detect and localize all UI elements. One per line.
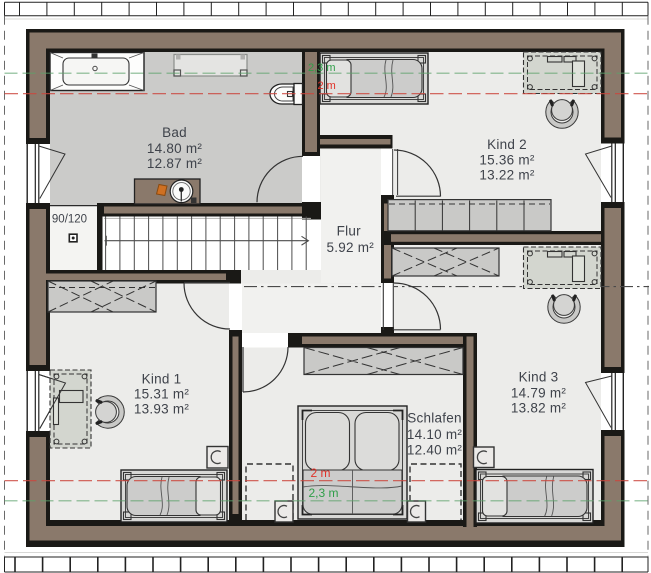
svg-text:14.10 m²: 14.10 m² [407,427,463,442]
svg-text:2,3 m: 2,3 m [308,62,336,74]
svg-text:2 m: 2 m [318,80,336,92]
svg-text:5.92 m²: 5.92 m² [327,240,375,255]
svg-text:Kind 3: Kind 3 [519,369,559,384]
svg-text:13.93 m²: 13.93 m² [134,402,190,417]
svg-text:Kind 1: Kind 1 [142,372,182,387]
svg-text:Schlafen: Schlafen [407,411,462,426]
svg-text:15.31 m²: 15.31 m² [134,386,190,401]
svg-text:12.87 m²: 12.87 m² [147,156,203,171]
svg-text:Bad: Bad [162,125,187,140]
svg-text:13.82 m²: 13.82 m² [511,401,567,416]
svg-text:90/120: 90/120 [52,214,87,226]
svg-text:Flur: Flur [337,224,362,239]
svg-text:15.36 m²: 15.36 m² [479,152,535,167]
svg-text:14.79 m²: 14.79 m² [511,385,567,400]
svg-text:Kind 2: Kind 2 [487,137,527,152]
svg-text:2 m: 2 m [311,466,331,480]
svg-text:2,3 m: 2,3 m [309,486,339,500]
svg-text:14.80 m²: 14.80 m² [147,141,203,156]
svg-text:13.22 m²: 13.22 m² [479,168,535,183]
svg-text:12.40 m²: 12.40 m² [407,443,463,458]
